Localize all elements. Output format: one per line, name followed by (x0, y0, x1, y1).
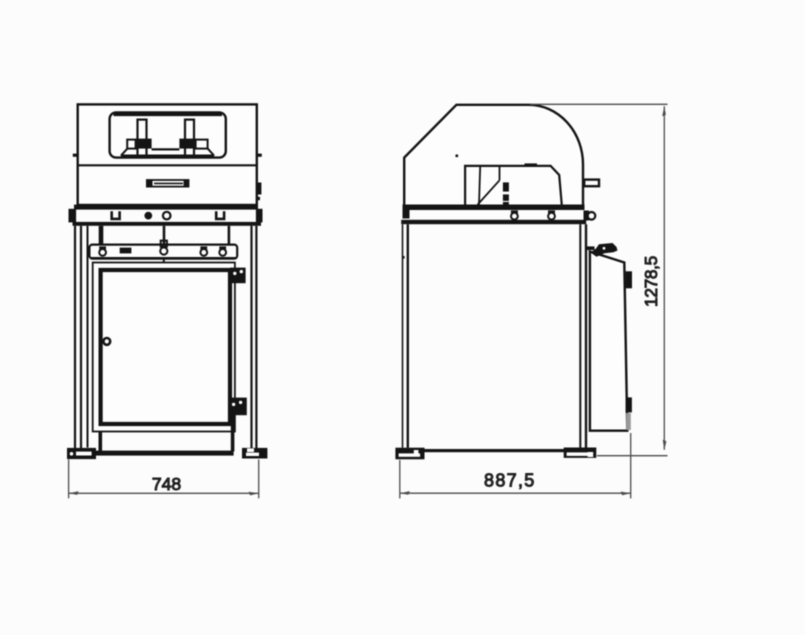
svg-text:887,5: 887,5 (484, 471, 536, 491)
svg-text:748: 748 (152, 474, 182, 494)
svg-text:1278,5: 1278,5 (641, 256, 661, 307)
